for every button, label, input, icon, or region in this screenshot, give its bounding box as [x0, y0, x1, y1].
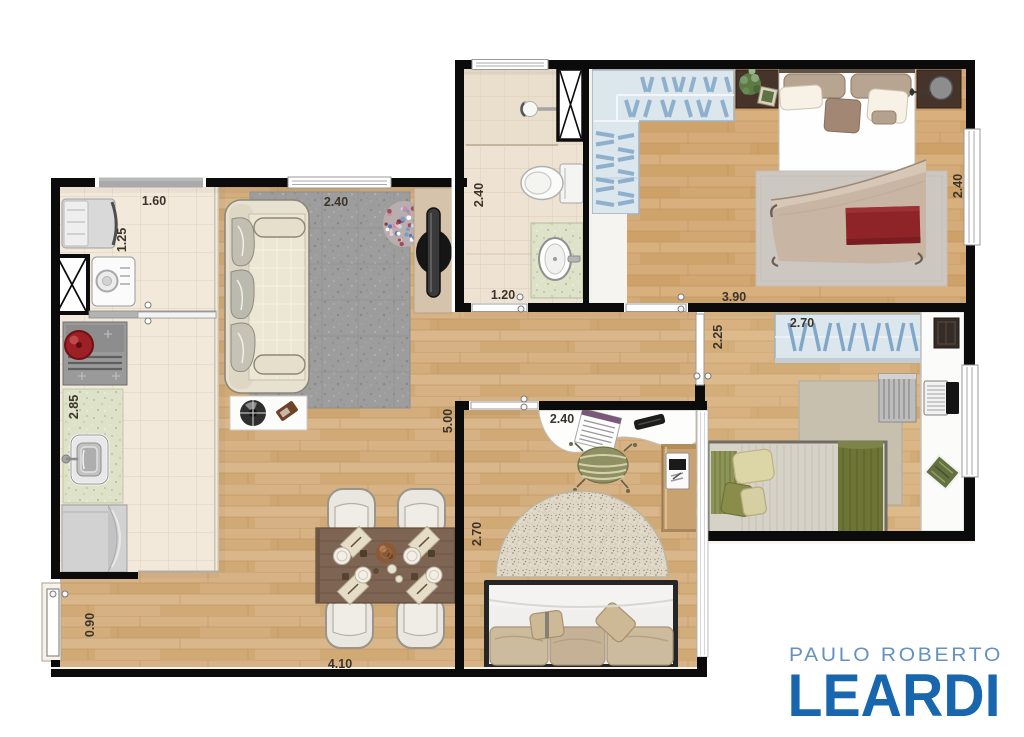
- svg-text:1.20: 1.20: [491, 288, 515, 302]
- svg-text:2.40: 2.40: [951, 174, 965, 198]
- svg-text:0.90: 0.90: [83, 613, 97, 637]
- svg-text:2.25: 2.25: [711, 325, 725, 349]
- svg-text:2.40: 2.40: [472, 183, 486, 207]
- svg-text:2.70: 2.70: [470, 522, 484, 546]
- svg-text:4.10: 4.10: [328, 657, 352, 671]
- svg-text:LEARDI: LEARDI: [788, 662, 1001, 729]
- svg-text:2.85: 2.85: [67, 395, 81, 419]
- svg-text:1.25: 1.25: [115, 228, 129, 252]
- svg-text:2.40: 2.40: [324, 195, 348, 209]
- svg-text:1.60: 1.60: [142, 194, 166, 208]
- svg-text:3.90: 3.90: [722, 290, 746, 304]
- svg-text:2.40: 2.40: [550, 412, 574, 426]
- svg-text:5.00: 5.00: [441, 409, 455, 433]
- svg-text:2.70: 2.70: [790, 316, 814, 330]
